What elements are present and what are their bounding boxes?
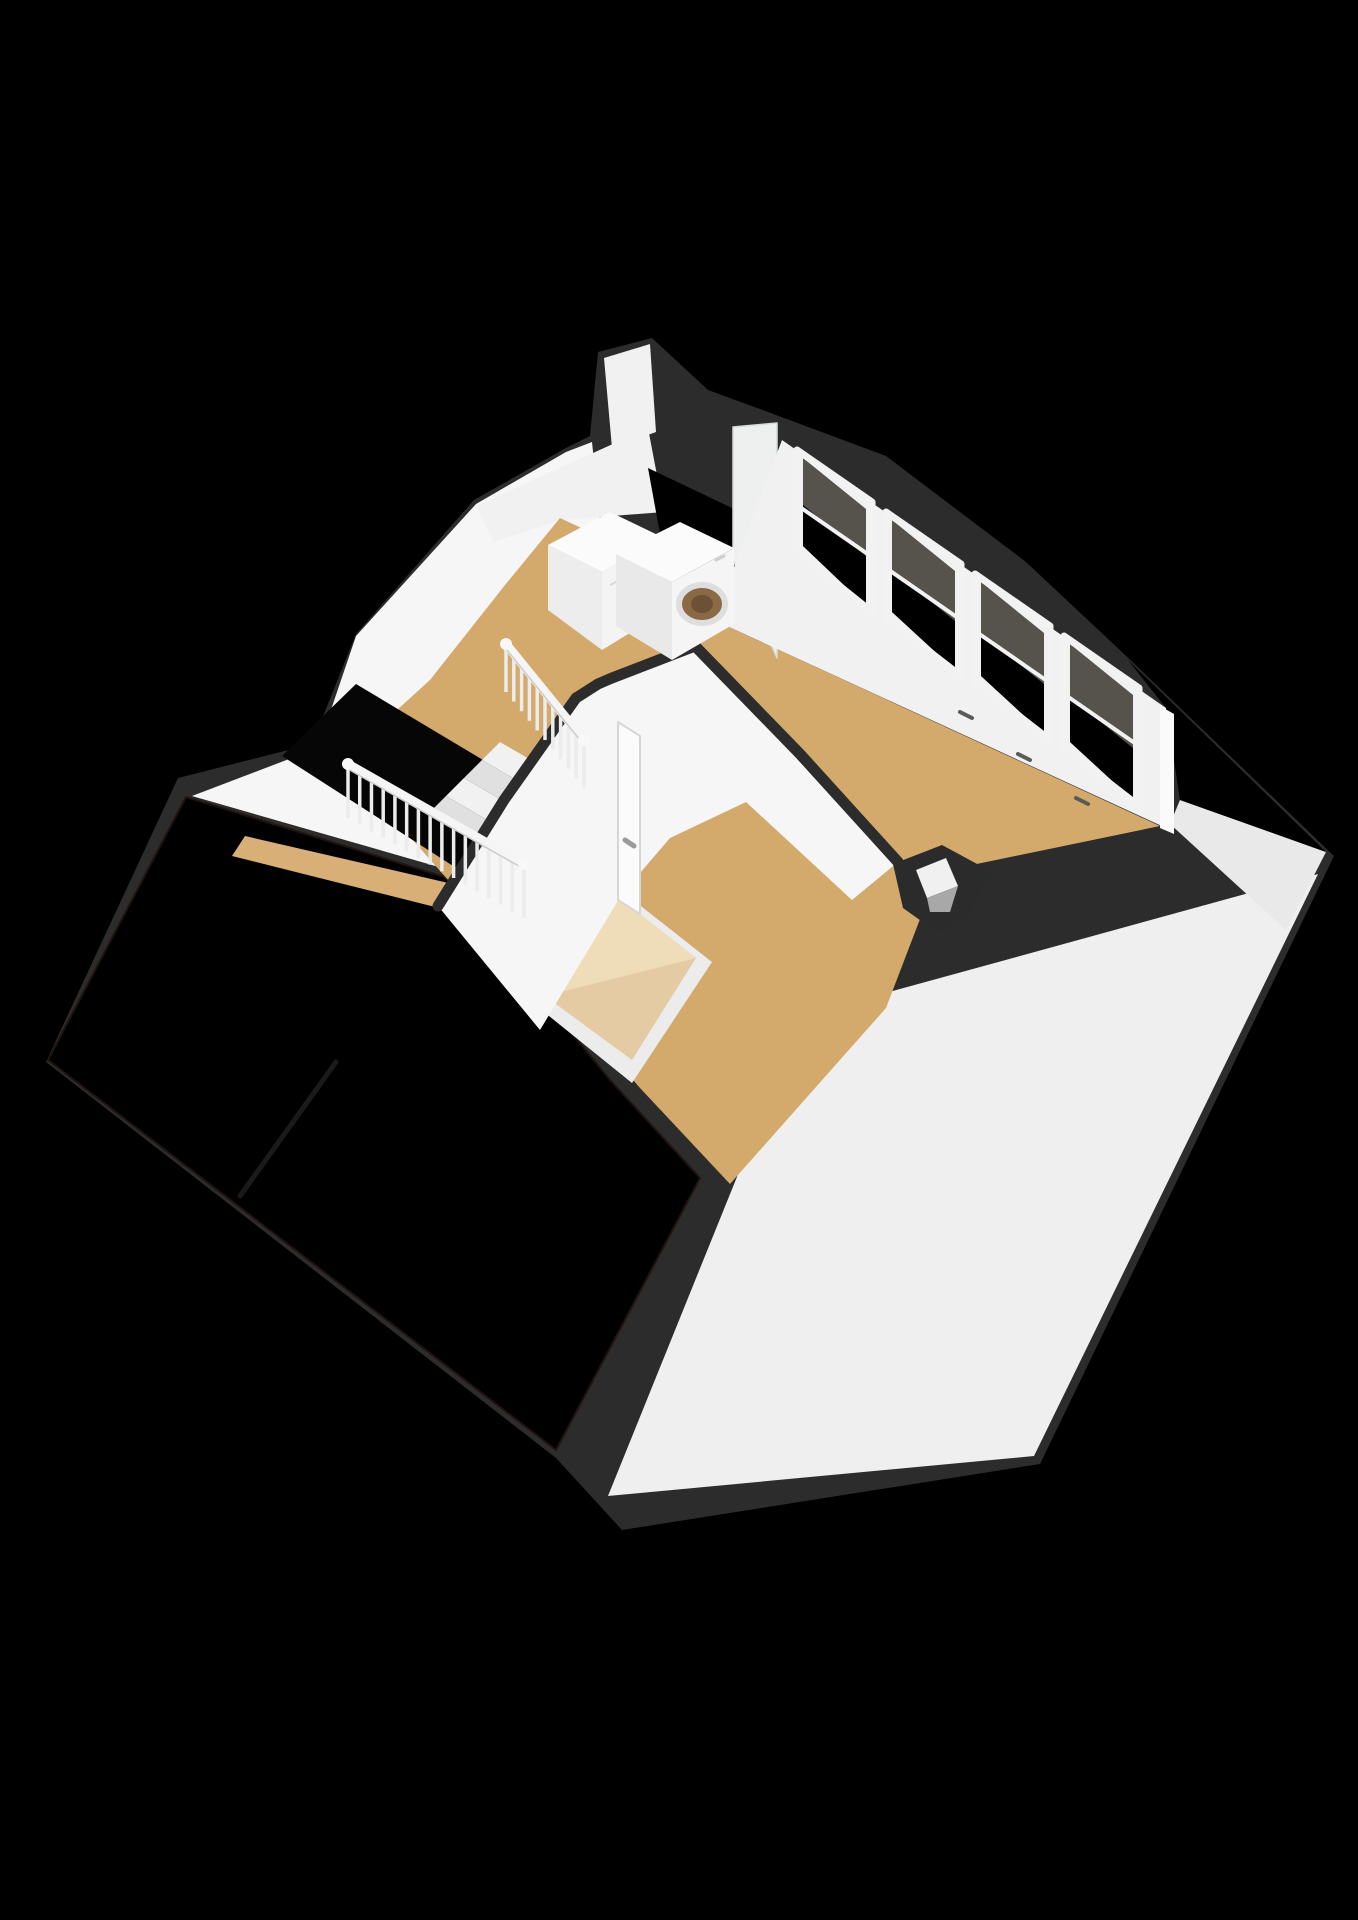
- attic-floorplan-canvas: [0, 0, 1358, 1920]
- railing-post-cap: [342, 758, 354, 770]
- dormer-back-wall: [604, 344, 656, 448]
- railing-post-cap: [500, 638, 512, 650]
- door-panel: [618, 722, 640, 914]
- floorplan-3d-render: [0, 0, 1358, 1920]
- window-wall-end-cap: [1160, 706, 1174, 834]
- railing-post-cap: [578, 734, 590, 746]
- washer-door-glass: [691, 595, 713, 613]
- railing-post-cap: [518, 858, 530, 870]
